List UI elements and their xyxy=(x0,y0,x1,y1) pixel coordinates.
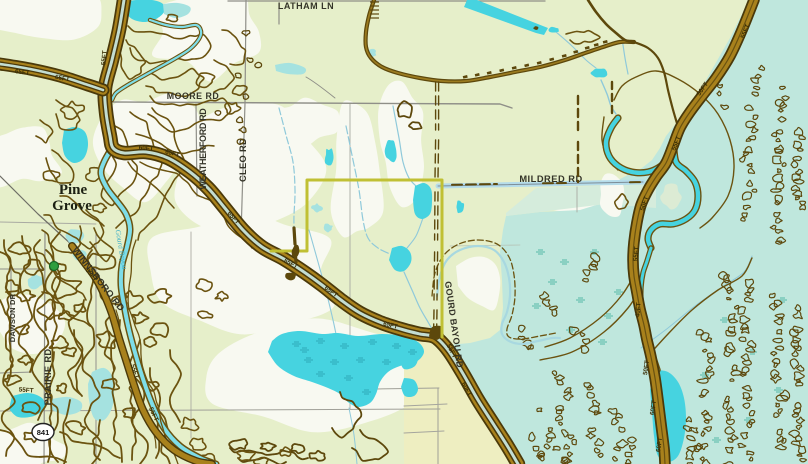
svg-text:LATHAM LN: LATHAM LN xyxy=(278,1,334,11)
svg-text:DAWSON DR: DAWSON DR xyxy=(8,293,17,342)
svg-text:WEATHERFORD RD: WEATHERFORD RD xyxy=(198,108,208,190)
svg-text:55FT: 55FT xyxy=(100,50,108,65)
svg-text:55FT: 55FT xyxy=(632,246,640,261)
svg-text:MILDRED RD: MILDRED RD xyxy=(519,174,582,184)
svg-text:55FT: 55FT xyxy=(19,386,34,394)
svg-text:Pine: Pine xyxy=(59,182,88,198)
svg-text:60FT: 60FT xyxy=(139,144,154,152)
svg-text:PRAIRIE RD: PRAIRIE RD xyxy=(43,349,53,406)
svg-text:Grove: Grove xyxy=(52,198,92,214)
svg-text:40FT: 40FT xyxy=(634,302,642,317)
svg-text:MOORE RD: MOORE RD xyxy=(167,91,219,101)
svg-text:841: 841 xyxy=(37,428,50,437)
